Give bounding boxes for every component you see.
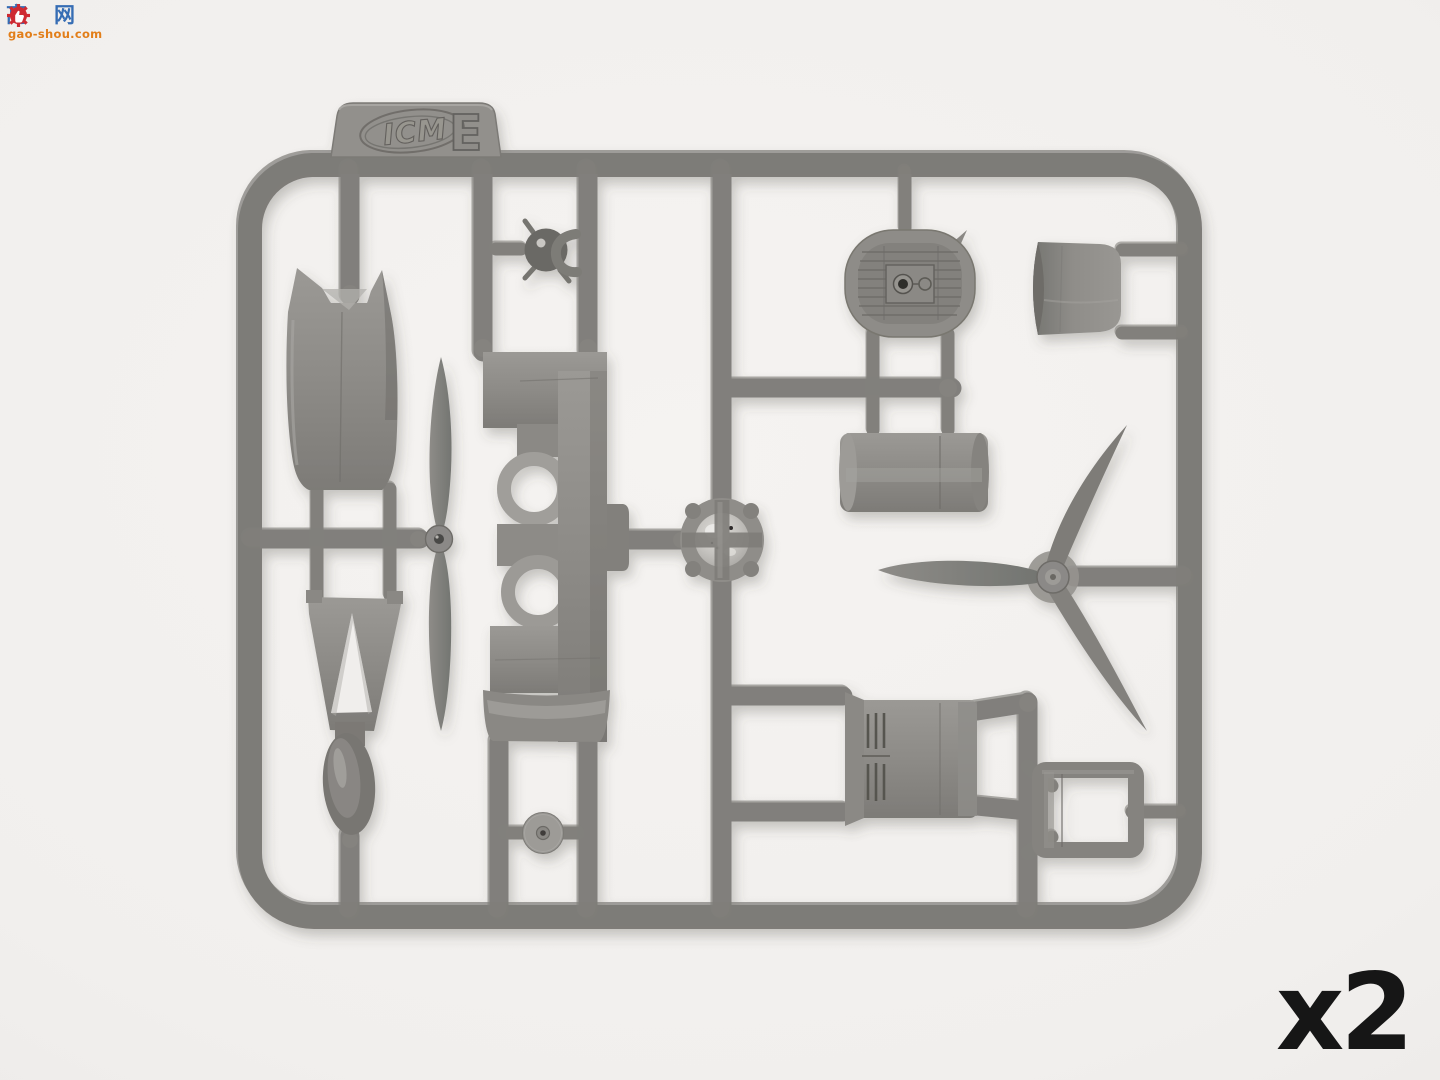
sprue-photo: ICM E — [0, 0, 1440, 1080]
tag-letter: E — [449, 105, 482, 162]
windscreen-frame-part — [306, 590, 403, 731]
curved-cowl-panel-part — [1033, 242, 1121, 335]
sprue-tag: ICM E — [331, 103, 501, 162]
thumbs-up-gear-icon — [28, 3, 53, 28]
fuselage-half-part — [286, 268, 397, 490]
louvered-cowling-part — [845, 692, 977, 826]
fuel-tank-oval-part — [320, 722, 379, 837]
two-blade-propeller-part — [426, 357, 453, 731]
quantity-label: x2 — [1276, 960, 1410, 1066]
radiator-grille-part — [845, 230, 975, 337]
watermark: 高 网 — [6, 3, 102, 41]
exhaust-cylinder-part — [839, 433, 989, 512]
watermark-char-right: 网 — [54, 5, 75, 26]
wheel-disc-part — [523, 813, 563, 853]
spinner-ball-part — [525, 221, 578, 281]
cowling-sections-panel-part — [483, 352, 629, 742]
engine-front-disc-part — [680, 498, 764, 582]
sprue: ICM E — [248, 103, 1190, 917]
icm-logo-text: ICM — [381, 111, 448, 151]
photo-canvas: ICM E — [0, 0, 1440, 1080]
watermark-site-text: gao-shou.com — [8, 29, 102, 41]
